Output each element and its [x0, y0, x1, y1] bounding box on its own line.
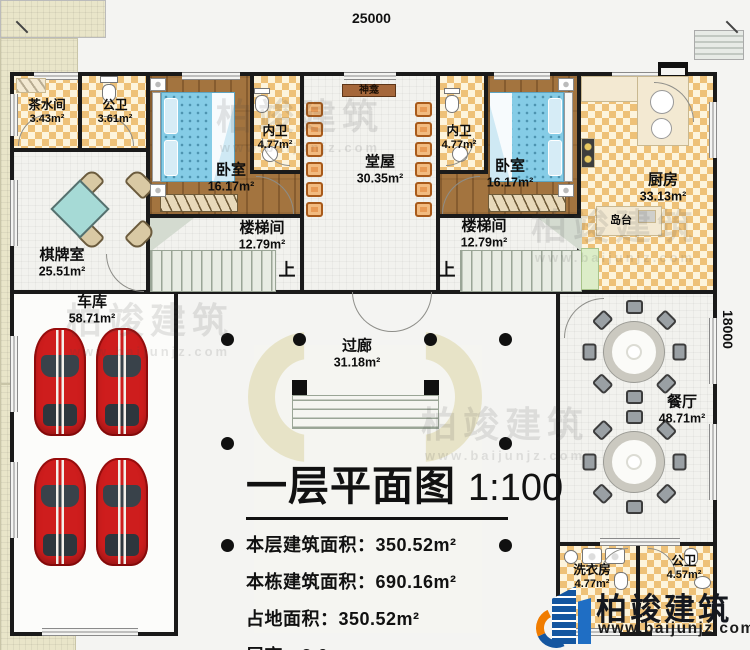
- title-block: 一层平面图1:100 本层建筑面积：350.52m² 本栋建筑面积：690.16…: [246, 452, 536, 650]
- window: [709, 318, 717, 384]
- wardrobe: [488, 194, 566, 212]
- bed-headboard: [564, 92, 573, 182]
- label-hall: 堂屋30.35m²: [357, 154, 404, 187]
- nightstand: [150, 78, 166, 91]
- cushion: [306, 202, 323, 217]
- window: [344, 72, 396, 80]
- shrine-table: 神龛: [342, 84, 396, 97]
- mahjong-table: [50, 179, 109, 238]
- column-dot: [499, 437, 512, 450]
- logo-mark-icon: [536, 586, 592, 648]
- cushion: [415, 182, 432, 197]
- car: [96, 458, 148, 566]
- floor-plan-canvas: 25000 18000: [0, 0, 750, 650]
- window: [709, 424, 717, 500]
- label-bath-top: 公卫3.61m²: [98, 98, 133, 126]
- dimension-height: 18000: [720, 310, 736, 349]
- bed-pillow: [548, 98, 562, 134]
- roof-terrace: [0, 0, 106, 38]
- ac-unit: [694, 30, 744, 60]
- column-dot: [221, 333, 234, 346]
- label-island: 岛台: [610, 214, 632, 227]
- toilet-icon: [255, 95, 269, 113]
- window: [10, 94, 18, 136]
- toilet-tank: [100, 76, 118, 83]
- column-dot: [293, 333, 306, 346]
- porch-pillar-right: [424, 380, 439, 395]
- title-underline: [246, 517, 508, 520]
- label-bath-bottom: 公卫4.57m²: [667, 554, 702, 582]
- wardrobe: [160, 194, 238, 212]
- cushion: [306, 122, 323, 137]
- toilet-tank: [254, 88, 270, 94]
- stair-flight-left: [150, 250, 276, 292]
- label-garage: 车库58.71m²: [69, 294, 116, 327]
- toilet-icon: [445, 95, 459, 113]
- bed-pillow: [548, 140, 562, 176]
- label-bedroom-left: 卧室16.17m²: [208, 162, 255, 195]
- island-sink: [638, 210, 656, 223]
- column-dot: [221, 437, 234, 450]
- cushion: [415, 122, 432, 137]
- label-chess: 棋牌室25.51m²: [39, 247, 86, 280]
- label-dining: 餐厅48.71m²: [659, 394, 706, 427]
- column-dot: [221, 539, 234, 552]
- stove-icon: [581, 138, 595, 168]
- chess-table-set: [36, 166, 124, 254]
- info-line: 占地面积：350.52m²: [246, 605, 536, 631]
- window: [494, 72, 550, 80]
- plan-scale: 1:100: [468, 467, 563, 509]
- info-line: 本栋建筑面积：690.16m²: [246, 568, 536, 594]
- label-tea: 茶水间3.43m²: [28, 98, 66, 126]
- window: [10, 336, 18, 412]
- label-stair-right: 楼梯间12.79m²: [461, 218, 508, 251]
- entrance-steps: [292, 395, 439, 429]
- sink-icon: [564, 550, 578, 564]
- door-hall-right-leaf: [392, 292, 432, 332]
- bed-pillow: [164, 140, 178, 176]
- dimension-width: 25000: [352, 10, 391, 26]
- cushion: [306, 102, 323, 117]
- label-up-left: 上: [279, 256, 296, 281]
- door-hall-left-leaf: [352, 292, 392, 332]
- nightstand: [558, 78, 574, 91]
- column-dot: [424, 333, 437, 346]
- stair-flight-right: [460, 250, 582, 292]
- nightstand: [558, 184, 574, 197]
- cushion: [306, 162, 323, 177]
- label-bedroom-right: 卧室16.17m²: [487, 158, 534, 191]
- tea-counter: [16, 78, 46, 93]
- nightstand: [150, 184, 166, 197]
- label-innerbath-right: 内卫4.77m²: [442, 124, 477, 152]
- bed-pillow: [164, 98, 178, 134]
- cushion: [415, 142, 432, 157]
- cushion: [306, 142, 323, 157]
- window: [182, 72, 240, 80]
- washer-icon: [582, 548, 602, 564]
- window: [10, 462, 18, 538]
- car: [34, 458, 86, 566]
- label-stair-left: 楼梯间12.79m²: [239, 220, 286, 253]
- column-dot: [499, 333, 512, 346]
- cushion: [415, 162, 432, 177]
- cushion: [306, 182, 323, 197]
- label-up-right: 上: [439, 256, 456, 281]
- window: [600, 538, 680, 546]
- window: [709, 102, 717, 158]
- brand-url: www.baijunjz.com: [598, 620, 750, 638]
- window: [10, 180, 18, 246]
- bed-headboard: [152, 92, 161, 182]
- label-corridor: 过廊31.18m²: [334, 338, 381, 371]
- info-line: 层高：3.6m: [246, 642, 536, 650]
- label-kitchen: 厨房33.13m²: [640, 172, 687, 205]
- car: [34, 328, 86, 436]
- info-line: 本层建筑面积：350.52m²: [246, 531, 536, 557]
- shrine-label: 神龛: [359, 85, 379, 96]
- window: [42, 628, 138, 636]
- cushion: [415, 102, 432, 117]
- toilet-tank: [444, 88, 460, 94]
- kitchen-mat: [581, 248, 599, 290]
- car: [96, 328, 148, 436]
- porch-pillar-left: [292, 380, 307, 395]
- plan-title: 一层平面图: [246, 463, 456, 509]
- cushion: [415, 202, 432, 217]
- label-innerbath-left: 内卫4.77m²: [258, 124, 293, 152]
